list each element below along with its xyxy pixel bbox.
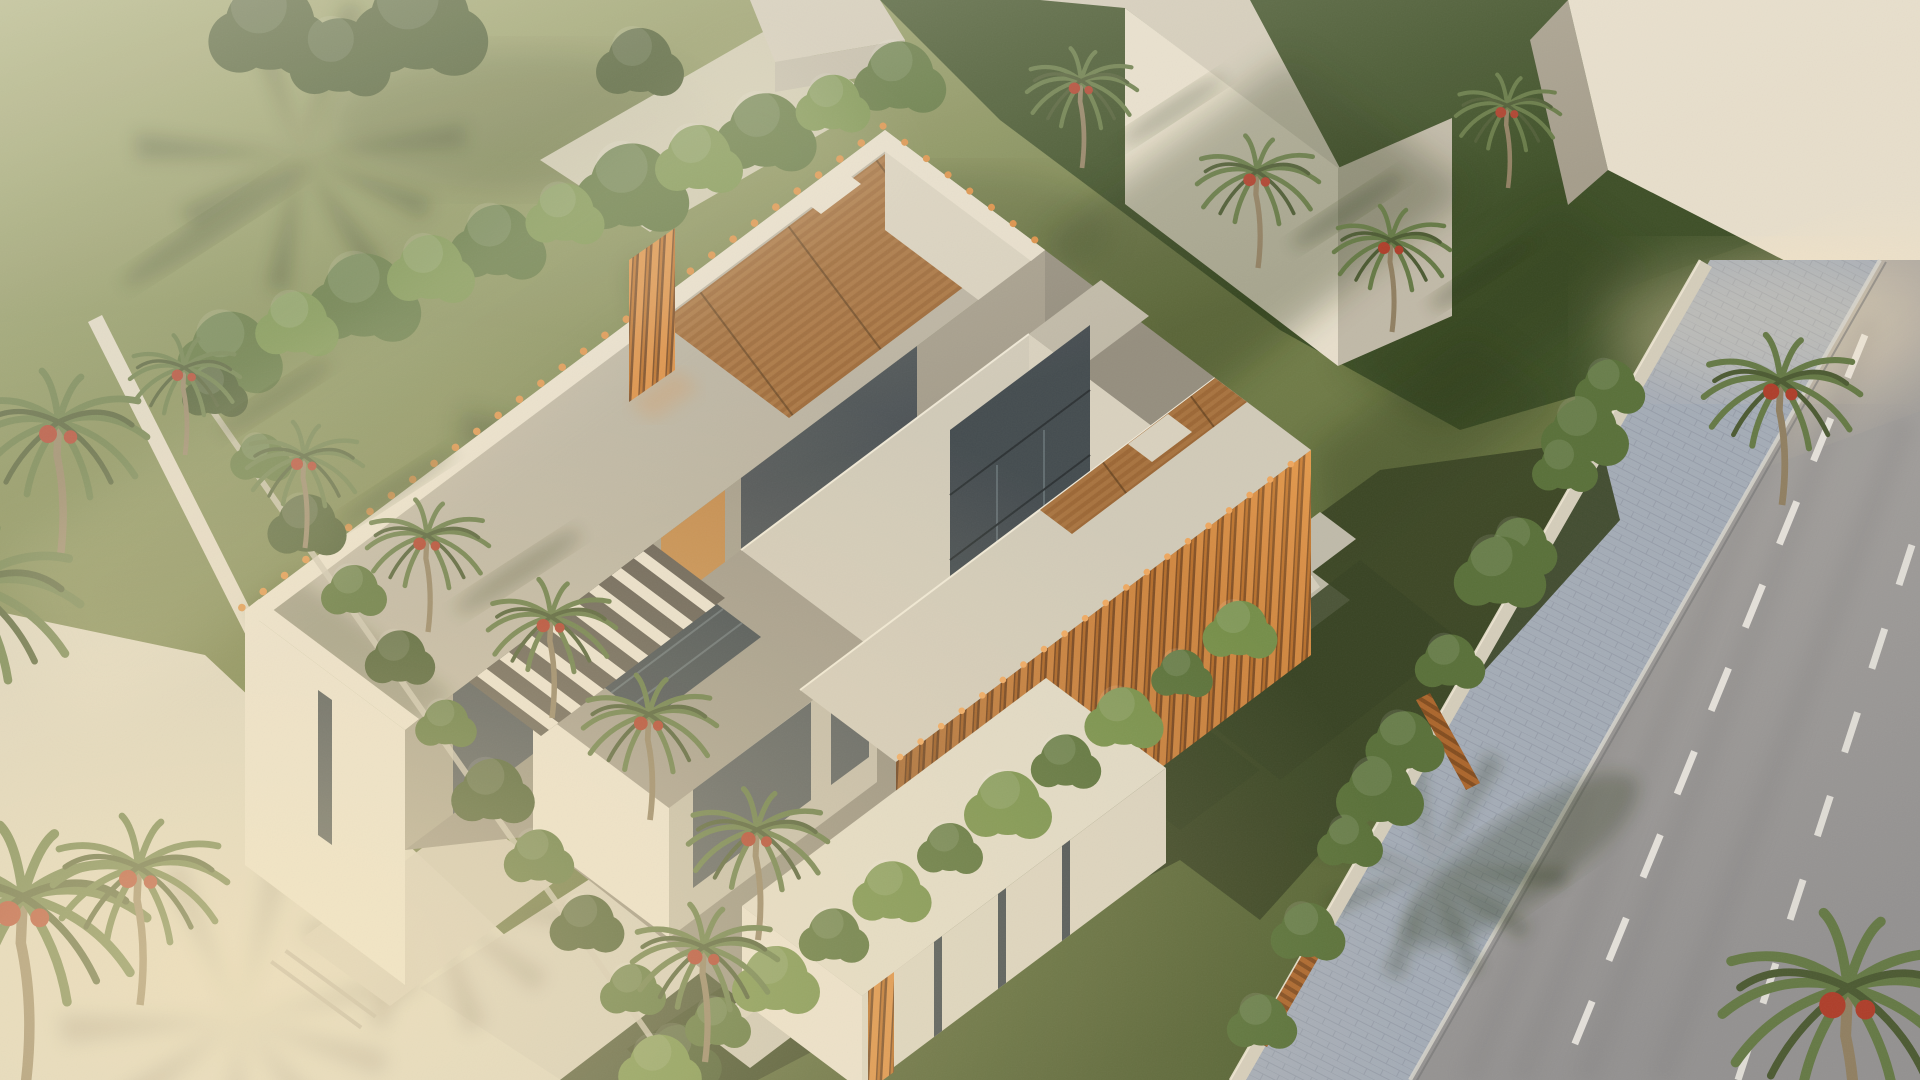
atmosphere <box>0 0 1920 1080</box>
architectural-render <box>0 0 1920 1080</box>
film-grain <box>0 0 1920 1080</box>
render-canvas <box>0 0 1920 1080</box>
